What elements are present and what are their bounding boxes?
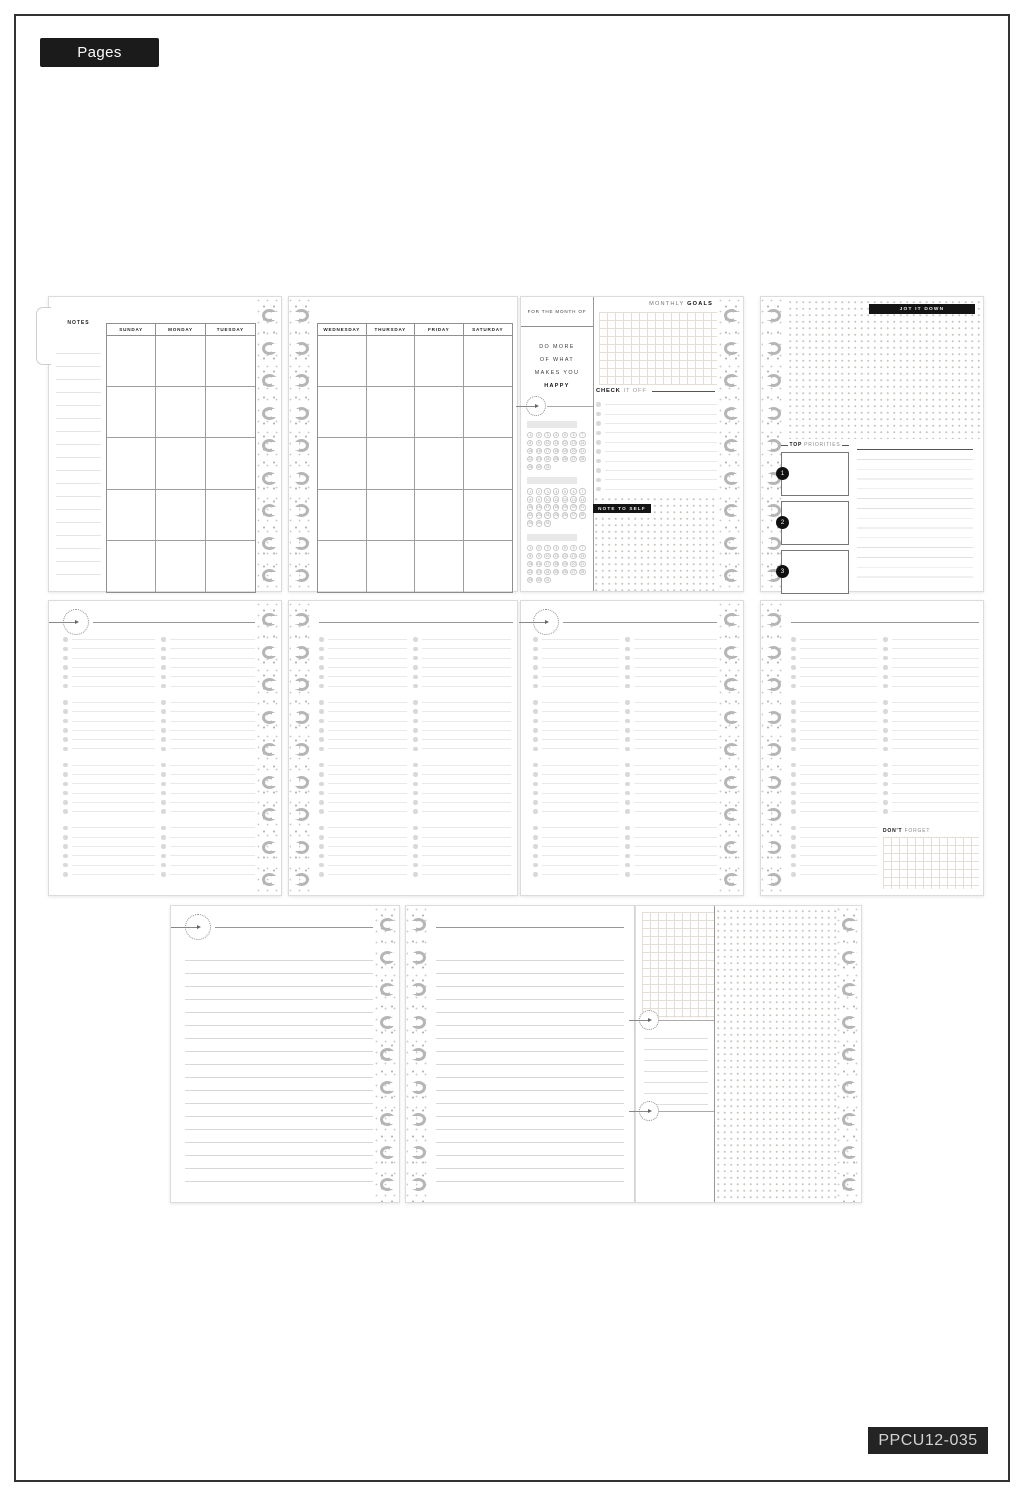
binder-disc-icon <box>766 808 781 821</box>
checklist-row <box>63 788 155 797</box>
tracker-day-circle: 31 <box>544 520 550 526</box>
tracker-day-circle: 24 <box>544 456 550 462</box>
quote-line: MAKES YOU <box>521 367 593 380</box>
checklist-row <box>63 672 155 681</box>
priority-number-badge: 1 <box>776 467 789 480</box>
binder-disc-icon <box>294 873 309 886</box>
checklist-group <box>161 698 255 754</box>
binder-disc-icon <box>724 646 739 659</box>
checklist-row <box>596 447 717 456</box>
title-bold: GOALS <box>687 301 713 307</box>
checklist-row <box>63 823 155 832</box>
tracker-day-circle: 6 <box>570 432 576 438</box>
checklist-row <box>319 861 407 870</box>
tracker-day-circle: 31 <box>544 577 550 583</box>
dot-grid <box>787 299 981 439</box>
tracker-day-circle: 27 <box>570 569 576 575</box>
tracker-label-bar <box>527 534 577 541</box>
tracker-day-circle: 10 <box>544 553 550 559</box>
checklist-column <box>883 635 979 823</box>
checklist-row <box>791 842 877 851</box>
top-rule <box>215 927 373 928</box>
tracker-day-circle: 12 <box>562 440 568 446</box>
binder-disc-icon <box>766 711 781 724</box>
calendar-day-cell <box>318 490 367 541</box>
binder-disc-icon <box>766 873 781 886</box>
binder-disc-icon <box>842 951 857 964</box>
divider-line <box>547 406 593 407</box>
binder-disc-icon <box>724 808 739 821</box>
checklist-row <box>319 644 407 653</box>
binder-disc-icon <box>842 1178 857 1191</box>
calendar-day-cell <box>156 438 205 489</box>
checklist-row <box>791 644 877 653</box>
tracker-day-circles: 1234567891011121314151617181920212223242… <box>527 545 589 583</box>
checklist-group <box>161 635 255 691</box>
checklist-row <box>63 779 155 788</box>
checklist-row <box>625 870 717 879</box>
binding-strip <box>406 906 430 1202</box>
small-ruled-lines <box>644 1028 708 1108</box>
dont-forget-grid <box>883 837 979 889</box>
checklist-row <box>413 698 511 707</box>
calendar-day-cell <box>107 336 156 387</box>
dont-forget-bold: DON'T <box>883 828 902 834</box>
tracker-day-circle: 2 <box>536 432 542 438</box>
binder-disc-icon <box>411 1113 426 1126</box>
check-bold: CHECK <box>596 388 621 394</box>
top-priorities: TOP PRIORITIES 1 2 3 <box>781 442 849 599</box>
priority-box: 3 <box>781 550 849 594</box>
binder-disc-icon <box>262 472 277 485</box>
tracker-day-circle: 20 <box>570 561 576 567</box>
binding-strip <box>719 601 743 895</box>
page-checklist-2 <box>288 600 518 896</box>
calendar-day-cell <box>367 387 416 438</box>
checklist-group <box>883 635 979 691</box>
binding-strip <box>761 601 785 895</box>
binder-disc-icon <box>724 776 739 789</box>
tracker-day-circle: 13 <box>570 496 576 502</box>
checklist-row <box>413 707 511 716</box>
binder-disc-icon <box>842 1016 857 1029</box>
binder-disc-icon <box>262 678 277 691</box>
tracker-day-circle: 3 <box>544 545 550 551</box>
checklist-row <box>791 735 877 744</box>
binding-strip <box>719 297 743 591</box>
binder-disc-icon <box>411 983 426 996</box>
checklist-row <box>161 870 255 879</box>
binder-disc-icon <box>411 1146 426 1159</box>
goals-grid <box>599 312 717 385</box>
binder-disc-icon <box>842 983 857 996</box>
checklist-row <box>625 833 717 842</box>
tracker-day-circle: 22 <box>527 512 533 518</box>
binder-disc-icon <box>766 678 781 691</box>
calendar-day-cell <box>107 387 156 438</box>
tracker-day-circle: 13 <box>570 440 576 446</box>
tracker-day-circle: 13 <box>570 553 576 559</box>
checklist-row <box>791 761 877 770</box>
checklist-row <box>625 663 717 672</box>
tracker-day-circles: 1234567891011121314151617181920212223242… <box>527 432 589 470</box>
binding-strip <box>257 297 281 591</box>
checklist-row <box>883 779 979 788</box>
habit-tracker-block: 1234567891011121314151617181920212223242… <box>527 421 589 470</box>
checklist-group <box>533 635 619 691</box>
checklist-group <box>319 698 407 754</box>
heading-rule <box>652 391 715 392</box>
checklist-row <box>161 833 255 842</box>
checklist-row <box>883 698 979 707</box>
checklist-row <box>319 807 407 816</box>
page-jot-it-down: JOT IT DOWN TOP PRIORITIES 1 2 3 <box>760 296 984 592</box>
binder-disc-icon <box>842 1081 857 1094</box>
checklist-row <box>883 707 979 716</box>
binder-disc-icon <box>294 407 309 420</box>
binding-strip <box>257 601 281 895</box>
tracker-day-circle: 26 <box>562 569 568 575</box>
checklist-row <box>413 798 511 807</box>
checklist-row <box>413 761 511 770</box>
for-the-month-of-label: FOR THE MONTH OF <box>521 297 593 327</box>
calendar-day-cell <box>107 490 156 541</box>
checklist-row <box>161 698 255 707</box>
checklist-row <box>533 672 619 681</box>
day-header: MONDAY <box>156 324 205 335</box>
tracker-day-circle: 14 <box>579 553 585 559</box>
binder-disc-icon <box>766 841 781 854</box>
tracker-day-circle: 16 <box>536 448 542 454</box>
checklist-row <box>319 798 407 807</box>
checklist-group <box>625 823 717 879</box>
checklist-row <box>413 654 511 663</box>
binder-disc-icon <box>766 439 781 452</box>
binder-disc-icon <box>380 983 395 996</box>
tracker-day-circle: 18 <box>553 448 559 454</box>
calendar-grid-left: SUNDAY MONDAY TUESDAY <box>106 323 256 593</box>
tracker-label-bar <box>527 421 577 428</box>
binder-disc-icon <box>724 439 739 452</box>
page-calendar-right: WEDNESDAY THURSDAY FRIDAY SATURDAY <box>288 296 518 592</box>
checklist-row <box>63 851 155 860</box>
tracker-day-circle: 21 <box>579 561 585 567</box>
tracker-day-circle: 4 <box>553 488 559 494</box>
dont-forget-light: FORGET <box>905 828 931 834</box>
checklist-row <box>413 870 511 879</box>
checklist-group <box>791 761 877 817</box>
tracker-day-circle: 30 <box>536 520 542 526</box>
binding-strip <box>375 906 399 1202</box>
binder-disc-icon <box>262 776 277 789</box>
tracker-day-circle: 25 <box>553 569 559 575</box>
binder-disc-icon <box>842 1113 857 1126</box>
checklist-row <box>63 833 155 842</box>
checklist-row <box>533 823 619 832</box>
binder-disc-icon <box>380 951 395 964</box>
day-header: FRIDAY <box>415 324 464 335</box>
checklist-row <box>883 716 979 725</box>
checklist-row <box>319 707 407 716</box>
checklist-row <box>625 779 717 788</box>
checklist-row <box>319 698 407 707</box>
checklist-row <box>63 807 155 816</box>
checklist-row <box>625 698 717 707</box>
product-sheet: Pages NOTES SUNDAY MONDAY TUESDAY WEDNES… <box>0 0 1024 1496</box>
goals-area: MONTHLY GOALS CHECK IT OFF NOTE TO SELF <box>593 297 719 591</box>
tracker-day-circle: 3 <box>544 488 550 494</box>
checklist-row <box>883 770 979 779</box>
checklist-row <box>319 779 407 788</box>
checklist-row <box>319 654 407 663</box>
tracker-day-circle: 8 <box>527 440 533 446</box>
checklist-row <box>625 672 717 681</box>
tracker-day-circle: 24 <box>544 512 550 518</box>
checklist-row <box>883 788 979 797</box>
checklist-row <box>883 798 979 807</box>
tracker-day-circle: 27 <box>570 512 576 518</box>
checklist-group <box>63 635 155 691</box>
tracker-day-circle: 28 <box>579 569 585 575</box>
checklist-row <box>319 842 407 851</box>
tracker-day-circle: 7 <box>579 432 585 438</box>
tracker-day-circle: 24 <box>544 569 550 575</box>
day-header: SUNDAY <box>107 324 156 335</box>
priority-box: 2 <box>781 501 849 545</box>
binder-disc-icon <box>411 1048 426 1061</box>
priorities-ruled-lines <box>857 449 973 585</box>
tracker-day-circle: 11 <box>553 496 559 502</box>
notes-heading: NOTES <box>56 320 101 326</box>
tracker-day-circle: 20 <box>570 504 576 510</box>
tracker-day-circle: 26 <box>562 456 568 462</box>
top-rule <box>93 622 255 623</box>
binder-disc-icon <box>294 504 309 517</box>
binder-disc-icon <box>262 613 277 626</box>
binder-disc-icon <box>262 374 277 387</box>
checklist-row <box>625 761 717 770</box>
checklist-row <box>596 475 717 484</box>
checklist-row <box>319 663 407 672</box>
checklist-group <box>625 761 717 817</box>
checklist-row <box>533 654 619 663</box>
tracker-day-circle: 15 <box>527 561 533 567</box>
checklist-row <box>625 861 717 870</box>
checklist-row <box>63 861 155 870</box>
dont-forget-section: DON'T FORGET <box>883 828 979 889</box>
top-rule <box>563 622 717 623</box>
binder-disc-icon <box>724 537 739 550</box>
checklist-group <box>791 823 877 879</box>
tracker-day-circle: 5 <box>562 488 568 494</box>
arrow-stamp-icon <box>533 609 559 635</box>
calendar-day-cell <box>156 490 205 541</box>
checklist-column <box>791 635 877 886</box>
checklist-row <box>533 788 619 797</box>
quote-line: OF WHAT <box>521 354 593 367</box>
checklist-row <box>533 735 619 744</box>
tracker-day-circle: 3 <box>544 432 550 438</box>
calendar-day-cell <box>367 490 416 541</box>
checklist-group <box>533 698 619 754</box>
binder-disc-icon <box>380 1146 395 1159</box>
checklist-row <box>161 851 255 860</box>
day-header: TUESDAY <box>206 324 255 335</box>
checklist-group <box>319 823 407 879</box>
checklist-row <box>596 409 717 418</box>
calendar-day-cell <box>415 336 464 387</box>
calendar-day-cell <box>367 541 416 592</box>
binder-disc-icon <box>724 711 739 724</box>
checklist-row <box>319 870 407 879</box>
checklist-row <box>625 654 717 663</box>
checklist-row <box>596 485 717 494</box>
binder-disc-icon <box>724 743 739 756</box>
checklist-row <box>161 672 255 681</box>
tracker-day-circle: 31 <box>544 464 550 470</box>
checklist-row <box>791 823 877 832</box>
tracker-day-circle: 9 <box>536 496 542 502</box>
binder-disc-icon <box>724 613 739 626</box>
tracker-day-circle: 19 <box>562 504 568 510</box>
tracker-day-circle: 4 <box>553 432 559 438</box>
checklist-row <box>413 842 511 851</box>
tracker-day-circle: 18 <box>553 561 559 567</box>
checklist-row <box>533 779 619 788</box>
checklist-row <box>625 807 717 816</box>
tracker-day-circle: 8 <box>527 496 533 502</box>
binder-disc-icon <box>262 309 277 322</box>
calendar-day-cell <box>206 387 255 438</box>
arrow-stamp-icon <box>639 1010 659 1030</box>
checklist-row <box>161 726 255 735</box>
checklist-row <box>319 833 407 842</box>
binding-strip <box>837 906 861 1202</box>
checklist-row <box>791 663 877 672</box>
checklist-row <box>596 438 717 447</box>
calendar-day-cell <box>415 490 464 541</box>
day-header: SATURDAY <box>464 324 513 335</box>
binder-disc-icon <box>842 1146 857 1159</box>
calendar-day-cell <box>464 490 513 541</box>
binder-disc-icon <box>294 678 309 691</box>
checklist-row <box>63 744 155 753</box>
binder-disc-icon <box>294 743 309 756</box>
checklist-row <box>791 870 877 879</box>
pages-tab[interactable]: Pages <box>40 38 159 67</box>
binder-disc-icon <box>411 1016 426 1029</box>
tracker-day-circle: 2 <box>536 488 542 494</box>
checklist-group <box>63 698 155 754</box>
binder-disc-icon <box>766 743 781 756</box>
binder-disc-icon <box>294 569 309 582</box>
checklist-group <box>319 761 407 817</box>
binder-disc-icon <box>724 342 739 355</box>
priority-box: 1 <box>781 452 849 496</box>
checklist-row <box>533 644 619 653</box>
calendar-day-cell <box>415 438 464 489</box>
binder-disc-icon <box>842 918 857 931</box>
checklist-row <box>791 798 877 807</box>
checklist-row <box>791 654 877 663</box>
tracker-day-circle: 29 <box>527 464 533 470</box>
checklist-row <box>63 770 155 779</box>
calendar-day-cell <box>464 541 513 592</box>
checklist-row <box>161 788 255 797</box>
checklist-row <box>161 823 255 832</box>
checklist-row <box>883 807 979 816</box>
tracker-day-circle: 22 <box>527 569 533 575</box>
binding-strip <box>289 297 313 591</box>
checklist-row <box>413 672 511 681</box>
tracker-label-bar <box>527 477 577 484</box>
tracker-day-circle: 8 <box>527 553 533 559</box>
binder-disc-icon <box>766 407 781 420</box>
tracker-day-circle: 14 <box>579 440 585 446</box>
tracker-day-circle: 30 <box>536 464 542 470</box>
checklist-row <box>791 726 877 735</box>
binder-disc-icon <box>262 873 277 886</box>
checklist-group <box>625 698 717 754</box>
binder-disc-icon <box>294 537 309 550</box>
checklist-row <box>319 744 407 753</box>
monthly-goals-title: MONTHLY GOALS <box>649 301 713 307</box>
checklist-row <box>413 744 511 753</box>
calendar-day-cell <box>206 490 255 541</box>
checklist-column <box>625 635 717 886</box>
tracker-day-circle: 14 <box>579 496 585 502</box>
checklist-row <box>625 726 717 735</box>
checklist-row <box>161 861 255 870</box>
checklist-row <box>161 716 255 725</box>
binder-disc-icon <box>724 374 739 387</box>
priority-number-badge: 2 <box>776 516 789 529</box>
binder-disc-icon <box>294 309 309 322</box>
checklist-row <box>883 726 979 735</box>
checklist-row <box>161 707 255 716</box>
top-rule <box>436 927 624 928</box>
checklist-row <box>319 823 407 832</box>
tracker-day-circle: 12 <box>562 553 568 559</box>
calendar-day-cell <box>156 387 205 438</box>
ruled-lines <box>436 948 624 1194</box>
checklist-row <box>413 807 511 816</box>
calendar-day-cell <box>107 438 156 489</box>
checklist-group <box>533 761 619 817</box>
checklist-row <box>413 770 511 779</box>
checklist-row <box>413 861 511 870</box>
note-to-self-label: NOTE TO SELF <box>593 504 651 513</box>
checklist-group <box>63 823 155 879</box>
binder-disc-icon <box>262 646 277 659</box>
motivational-quote: DO MORE OF WHAT MAKES YOU HAPPY <box>521 341 593 393</box>
checklist-row <box>161 807 255 816</box>
binder-disc-icon <box>262 342 277 355</box>
binder-disc-icon <box>766 646 781 659</box>
calendar-day-cell <box>318 438 367 489</box>
checklist-row <box>63 798 155 807</box>
habit-tracker-block: 1234567891011121314151617181920212223242… <box>527 534 589 583</box>
tracker-day-circle: 7 <box>579 488 585 494</box>
calendar-day-cell <box>206 336 255 387</box>
habit-trackers: 1234567891011121314151617181920212223242… <box>527 421 589 589</box>
checklist-row <box>791 698 877 707</box>
checklist-row <box>319 770 407 779</box>
top-rule <box>791 622 979 623</box>
tracker-day-circle: 20 <box>570 448 576 454</box>
tracker-day-circle: 26 <box>562 512 568 518</box>
tracker-day-circle: 5 <box>562 432 568 438</box>
